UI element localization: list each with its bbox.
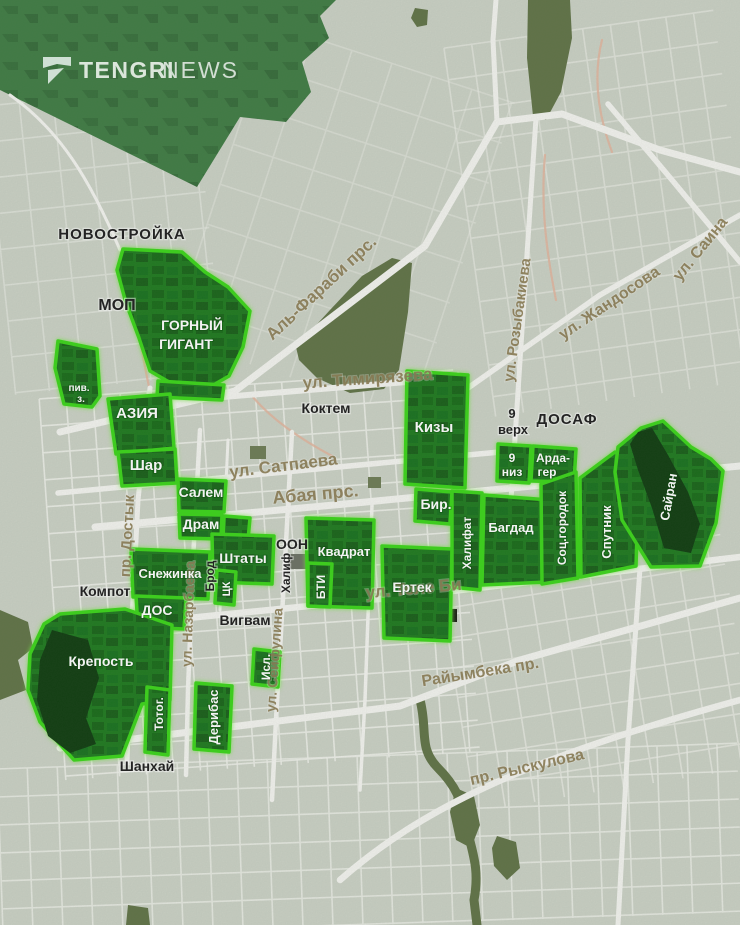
brand-name-secondary: NEWS (162, 57, 239, 83)
map-infographic: Аль-Фараби прс. ул. Тимирязева ул. Сатпа… (0, 0, 740, 925)
grain-overlay (0, 0, 740, 925)
brand-name-primary: TENGRI (79, 57, 175, 83)
city-map-svg: Аль-Фараби прс. ул. Тимирязева ул. Сатпа… (0, 0, 740, 925)
